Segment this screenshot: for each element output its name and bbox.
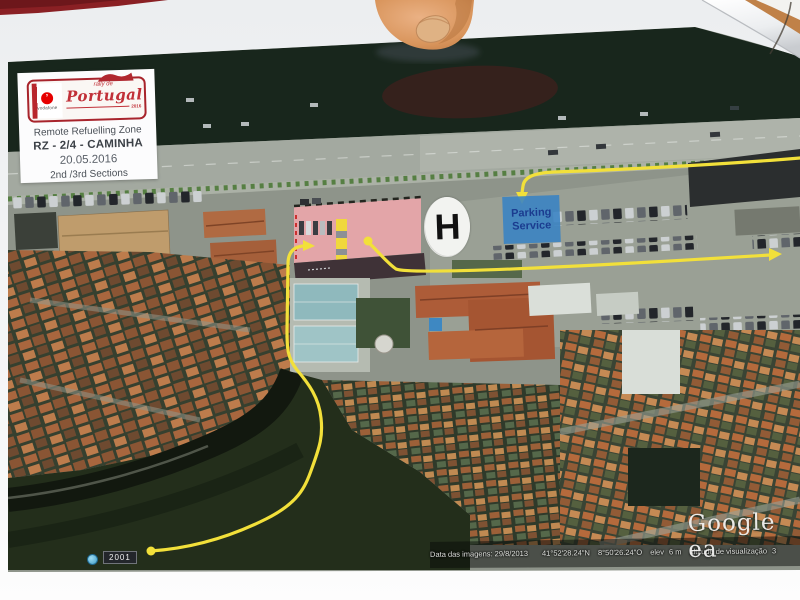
white-roof-large — [622, 330, 680, 394]
year-badge: 2001 — [103, 551, 137, 564]
vodafone-logo: ’ vodafone — [32, 83, 63, 119]
rally-portugal-plate-logo: ’ vodafone rally de Portugal 2016 — [27, 76, 147, 123]
vodafone-wordmark: vodafone — [37, 104, 57, 110]
info-box: ’ vodafone rally de Portugal 2016 Remote… — [17, 69, 157, 183]
elevation-value: 6 m — [669, 547, 682, 556]
route-dot-start — [147, 547, 156, 556]
photo-of-printed-map: ’ vodafone rally de Portugal 2016 Remote… — [0, 0, 800, 600]
parking-label-line2: Service — [512, 219, 552, 233]
rally-wordmark: rally de Portugal 2016 — [66, 80, 142, 110]
elevation-label: elev — [650, 547, 664, 556]
google-earth-watermark: Google ea — [688, 509, 800, 563]
parking-service-box: Parking Service — [502, 195, 561, 244]
dome-building — [375, 335, 393, 353]
history-clock-icon — [87, 554, 98, 565]
portugal-text: Portugal — [66, 87, 141, 104]
latitude-value: 41°52'28.24"N — [542, 548, 590, 558]
edition-year: 2016 — [131, 103, 141, 108]
sports-court — [628, 448, 700, 506]
vodafone-icon: ’ — [41, 92, 53, 104]
route-dot-zone — [364, 237, 373, 246]
refuel-rig-marker — [336, 219, 347, 265]
imagery-date: Data das imagens: 29/8/2013 — [430, 549, 528, 559]
longitude-value: 8°50'26.24"O — [598, 548, 642, 557]
white-roof-building — [528, 283, 591, 316]
